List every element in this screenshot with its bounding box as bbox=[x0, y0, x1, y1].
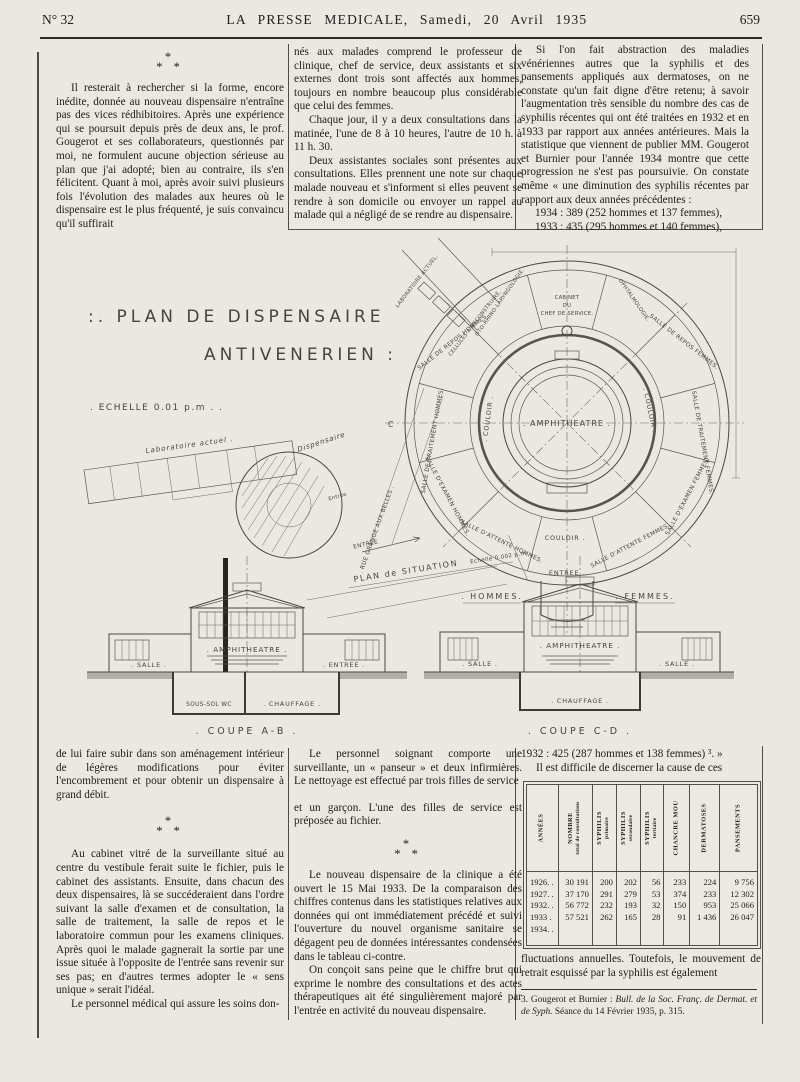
label-hommes: . HOMMES. bbox=[461, 592, 523, 601]
label-entree-plan: ENTREE . bbox=[549, 569, 585, 577]
label-sit-entree: Entrée bbox=[328, 491, 348, 503]
section-cd: . SALLE . . AMPHITHEATRE . . SALLE . . C… bbox=[424, 556, 734, 737]
statistic-line: 1932 : 425 (287 hommes et 138 femmes) ³.… bbox=[521, 748, 761, 762]
statistic-line: 1934 : 389 (252 hommes et 137 femmes), bbox=[521, 207, 749, 221]
laboratory-wing: LABORATOIRE ACTUEL. CELLULES A RECONSTRU… bbox=[395, 238, 503, 358]
col-header-dermatoses: DERMATOSES bbox=[690, 785, 720, 872]
paragraph: nés aux malades comprend le professeur d… bbox=[294, 46, 522, 114]
label-cellules: CELLULES A RECONSTRUIRE. bbox=[448, 289, 503, 357]
label-ab-amphitheatre: . AMPHITHEATRE . bbox=[207, 645, 288, 654]
paragraph: Si l'on fait abstraction des maladies vé… bbox=[521, 44, 749, 207]
paragraph: Le nouveau dispensaire de la clinique a … bbox=[294, 869, 522, 964]
table-row: 1927. .37 1702912795337423312 302 bbox=[527, 889, 758, 901]
top-column-3: Si l'on fait abstraction des maladies vé… bbox=[521, 44, 749, 232]
top-column-2: nés aux malades comprend le professeur d… bbox=[294, 46, 522, 232]
paragraph: et un garçon. L'une des filles de servic… bbox=[294, 802, 522, 829]
label-cd-salle-left: . SALLE . bbox=[462, 660, 498, 668]
paragraph: Deux assistantes sociales sont présentes… bbox=[294, 155, 522, 223]
label-sit-echelle: Echelle 0.002 p.m. bbox=[470, 550, 529, 565]
journal-page: N° 32 LA PRESSE MEDICALE, Samedi, 20 Avr… bbox=[0, 0, 800, 1082]
label-cabinet-2: DU bbox=[563, 303, 571, 309]
col-header-syphilis-secondaire: SYPHILISsecondaire bbox=[616, 785, 640, 872]
asterism: * * * bbox=[56, 52, 284, 72]
paragraph: fluctuations annuelles. Toutefois, le mo… bbox=[521, 953, 761, 980]
col-header-annees: ANNÉES bbox=[527, 785, 559, 872]
label-ophtalmologie: OPHTALMOLOGIE. bbox=[617, 278, 651, 323]
right-margin-rule-bottom bbox=[762, 746, 763, 1024]
paragraph: Au cabinet vitré de la surveillante situ… bbox=[56, 848, 284, 998]
label-rue: . RUE GRANGE AUX BELLES . bbox=[358, 485, 396, 575]
label-cd-salle-right: . SALLE . bbox=[659, 660, 695, 668]
issue-number: N° 32 bbox=[42, 12, 74, 28]
label-plan-situation: PLAN de SITUATION bbox=[353, 559, 459, 584]
bottom-column-3: 1932 : 425 (287 hommes et 138 femmes) ³.… bbox=[521, 748, 761, 1024]
statistics-table: ANNÉES NOMBREtotal de consultations SYPH… bbox=[526, 784, 758, 946]
label-orl: OTO-RHINO-LARYNGOLOGIE. bbox=[474, 267, 526, 337]
figure-scale: . ECHELLE 0.01 p.m . . bbox=[90, 403, 223, 413]
label-repos-femmes: SALLE DE REPOS FEMMES. bbox=[648, 313, 719, 371]
paragraph: Le personnel soignant comporte une surve… bbox=[294, 748, 522, 789]
statistics-table-frame: ANNÉES NOMBREtotal de consultations SYPH… bbox=[523, 781, 761, 949]
footnote-rule bbox=[521, 989, 757, 990]
paragraph: On conçoit sans peine que le chiffre bru… bbox=[294, 964, 522, 1018]
label-cabinet-1: CABINET bbox=[555, 295, 580, 301]
section-mark-c: C bbox=[388, 420, 394, 429]
label-cabinet-3: CHEF DE SERVICE. bbox=[541, 311, 594, 317]
page-number: 659 bbox=[740, 12, 760, 28]
top-column-1: * * * Il resterait à rechercher si la fo… bbox=[56, 46, 284, 232]
figure-title-line2: ANTIVENERIEN : bbox=[204, 345, 397, 365]
page-header: N° 32 LA PRESSE MEDICALE, Samedi, 20 Avr… bbox=[42, 12, 760, 28]
paragraph: Il resterait à rechercher si la forme, e… bbox=[56, 82, 284, 232]
label-examen-femmes: SALLE D'EXAMEN FEMMES. bbox=[665, 457, 711, 537]
left-margin-rule bbox=[37, 52, 39, 1038]
col-header-nombre: NOMBREtotal de consultations bbox=[558, 785, 592, 872]
table-row: 1932. .56 7722321933215095325 066 bbox=[527, 900, 758, 912]
column-rule bbox=[288, 748, 289, 1020]
paragraph: Il est difficile de discerner la cause d… bbox=[521, 762, 761, 776]
statistic-line: 1933 : 435 (295 hommes et 140 femmes), bbox=[521, 221, 749, 232]
label-cd-chauffage: . CHAUFFAGE . bbox=[551, 697, 609, 705]
table-row: 1926. .30 191200202562332249 756 bbox=[527, 872, 758, 889]
column-rule bbox=[288, 44, 289, 230]
paragraph: Chaque jour, il y a deux consultations d… bbox=[294, 114, 522, 155]
label-sit-dispensaire: Dispensaire bbox=[296, 431, 346, 454]
label-laboratoire-actuel: LABORATOIRE ACTUEL. bbox=[395, 254, 440, 309]
table-row: 1933 .57 52126216528911 43626 047 bbox=[527, 912, 758, 924]
asterism: * * * bbox=[294, 839, 522, 859]
footnote: 3. Gougerot et Burnier : Bull. de la Soc… bbox=[521, 995, 757, 1018]
bottom-column-2: Le personnel soignant comporte une surve… bbox=[294, 748, 522, 1020]
col-header-syphilis-tertiaire: SYPHILIStertiaire bbox=[640, 785, 664, 872]
bottom-column-1: de lui faire subir dans son aménagement … bbox=[56, 748, 284, 1020]
label-ab-soussol: SOUS-SOL WC bbox=[186, 702, 232, 708]
label-couloir-left: . COULOIR . bbox=[481, 395, 495, 442]
col-header-pansements: PANSEMENTS bbox=[720, 785, 758, 872]
header-rule bbox=[40, 37, 762, 39]
figure-title-line1: :. PLAN DE DISPENSAIRE bbox=[88, 307, 385, 327]
paragraph: Le personnel médical qui assure les soin… bbox=[56, 998, 284, 1012]
label-ab-salle: . SALLE . bbox=[131, 661, 167, 669]
masthead: LA PRESSE MEDICALE, Samedi, 20 Avril 193… bbox=[226, 12, 587, 28]
paragraph: de lui faire subir dans son aménagement … bbox=[56, 748, 284, 802]
asterism: * * * bbox=[56, 816, 284, 836]
right-margin-rule-top bbox=[762, 44, 763, 230]
plan-drawing: :. PLAN DE DISPENSAIRE ANTIVENERIEN : . … bbox=[72, 238, 744, 746]
label-amphitheatre: . AMPHITHEATRE . bbox=[523, 419, 611, 428]
table-header-row: ANNÉES NOMBREtotal de consultations SYPH… bbox=[527, 785, 758, 872]
dispensary-plan-figure: :. PLAN DE DISPENSAIRE ANTIVENERIEN : . … bbox=[72, 238, 744, 746]
label-ab-chauffage: . CHAUFFAGE . bbox=[263, 700, 321, 708]
label-couloir-bottom: COULOIR . bbox=[545, 534, 586, 542]
label-ab-entree: . ENTREE . bbox=[323, 661, 365, 669]
col-header-syphilis-primaire: SYPHILISprimaire bbox=[592, 785, 616, 872]
table-row: 1934. . bbox=[527, 924, 758, 946]
label-sit-laboratoire: Laboratoire actuel . bbox=[145, 435, 234, 455]
label-couloir-right: . COULOIR . bbox=[641, 387, 658, 434]
col-header-chancre-mou: CHANCRE MOU bbox=[664, 785, 690, 872]
label-cd-amphitheatre: . AMPHITHEATRE . bbox=[540, 641, 621, 650]
caption-coupe-cd: . COUPE C-D . bbox=[528, 726, 632, 737]
street: . RUE GRANGE AUX BELLES . ENTREE bbox=[353, 388, 443, 574]
caption-coupe-ab: . COUPE A-B . bbox=[196, 726, 299, 737]
